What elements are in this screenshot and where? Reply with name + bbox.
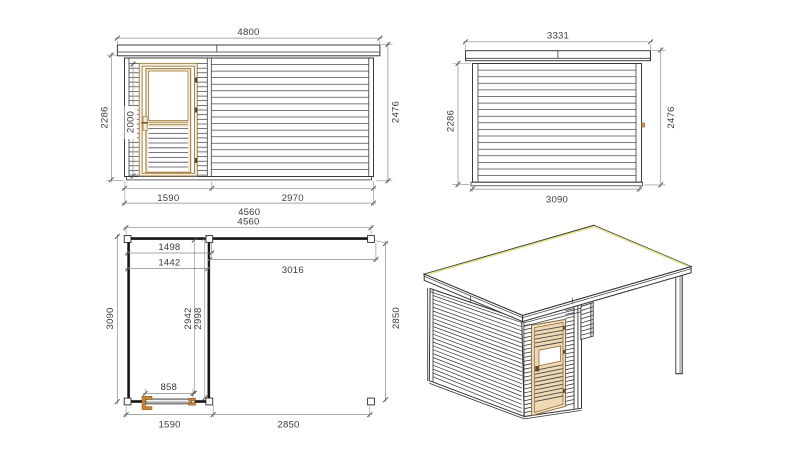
svg-text:2476: 2476 (666, 106, 677, 128)
svg-text:4800: 4800 (237, 27, 259, 38)
svg-text:4560: 4560 (237, 217, 259, 228)
svg-text:3090: 3090 (105, 307, 116, 329)
svg-text:2286: 2286 (446, 110, 457, 132)
svg-text:3331: 3331 (547, 31, 569, 42)
svg-text:2000: 2000 (126, 111, 137, 133)
svg-text:2850: 2850 (277, 419, 299, 430)
svg-text:3090: 3090 (546, 194, 568, 205)
svg-text:2850: 2850 (391, 307, 402, 329)
svg-text:2970: 2970 (282, 193, 304, 204)
svg-text:2998: 2998 (193, 307, 204, 329)
svg-text:1590: 1590 (157, 193, 179, 204)
svg-text:858: 858 (160, 382, 177, 393)
svg-text:1498: 1498 (158, 242, 180, 253)
svg-text:1590: 1590 (159, 419, 181, 430)
svg-text:3016: 3016 (282, 265, 304, 276)
svg-text:2476: 2476 (391, 101, 402, 123)
svg-text:1442: 1442 (158, 257, 180, 268)
svg-text:2286: 2286 (99, 106, 110, 128)
